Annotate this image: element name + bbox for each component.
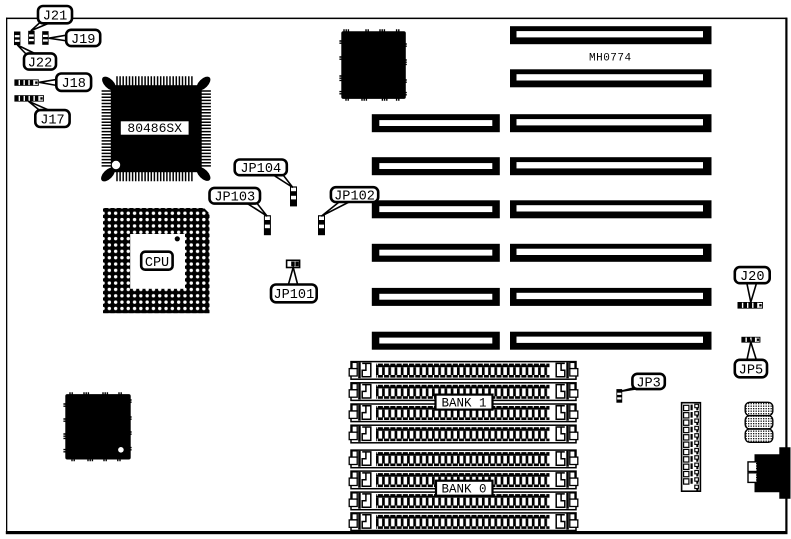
svg-text:BANK 0: BANK 0 [441,483,486,497]
svg-text:80486SX: 80486SX [127,121,182,136]
svg-text:JP102: JP102 [334,189,375,204]
svg-text:J18: J18 [61,77,85,92]
svg-text:J20: J20 [740,270,764,285]
svg-text:MH0774: MH0774 [589,53,632,65]
svg-text:J21: J21 [43,9,67,24]
svg-text:CPU: CPU [145,256,169,271]
svg-text:JP101: JP101 [273,288,314,303]
svg-text:JP103: JP103 [214,191,255,206]
svg-text:J22: J22 [28,56,52,71]
svg-text:JP3: JP3 [636,376,660,391]
svg-text:BANK 1: BANK 1 [441,397,486,411]
svg-text:J19: J19 [71,33,95,48]
svg-text:J17: J17 [40,113,64,128]
svg-text:JP104: JP104 [240,162,281,177]
svg-text:JP5: JP5 [739,363,763,378]
